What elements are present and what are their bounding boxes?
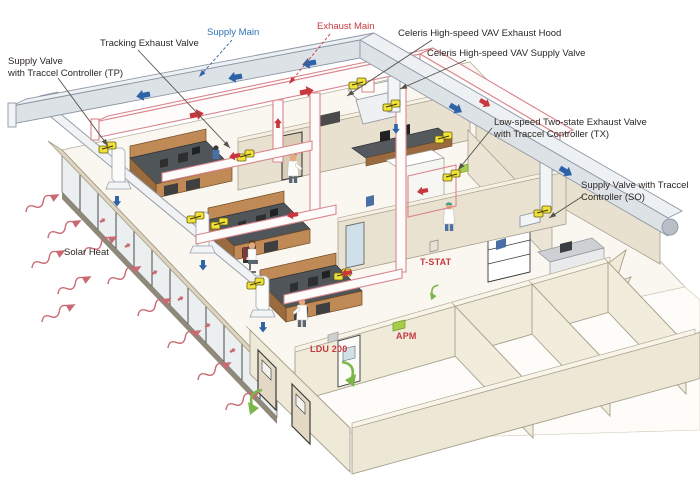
duct-end-cap [662,219,678,235]
label-supply-valve-so: Supply Valve with Traccel Controller (SO… [581,180,689,203]
person-mini [213,145,220,159]
label-exhaust-main: Exhaust Main [317,21,375,33]
hvac-isometric-diagram: Supply Valve with Traccel Controller (TP… [0,0,700,482]
label-celeris-supply-valve: Celeris High-speed VAV Supply Valve [427,48,585,60]
label-ldu-200: LDU 200 [310,344,347,355]
label-celeris-exhaust-hood: Celeris High-speed VAV Exhaust Hood [398,28,561,40]
room-door [346,222,364,268]
label-solar-heat: Solar Heat [64,247,109,259]
label-apm: APM [396,331,417,342]
t-stat-device [430,240,438,252]
label-supply-valve-tp: Supply Valve with Traccel Controller (TP… [8,56,123,79]
label-supply-main: Supply Main [207,27,259,39]
label-t-stat: T-STAT [420,257,451,268]
label-tracking-exhaust-valve: Tracking Exhaust Valve [100,38,199,50]
label-low-speed-tx: Low-speed Two-state Exhaust Valve with T… [494,117,647,140]
